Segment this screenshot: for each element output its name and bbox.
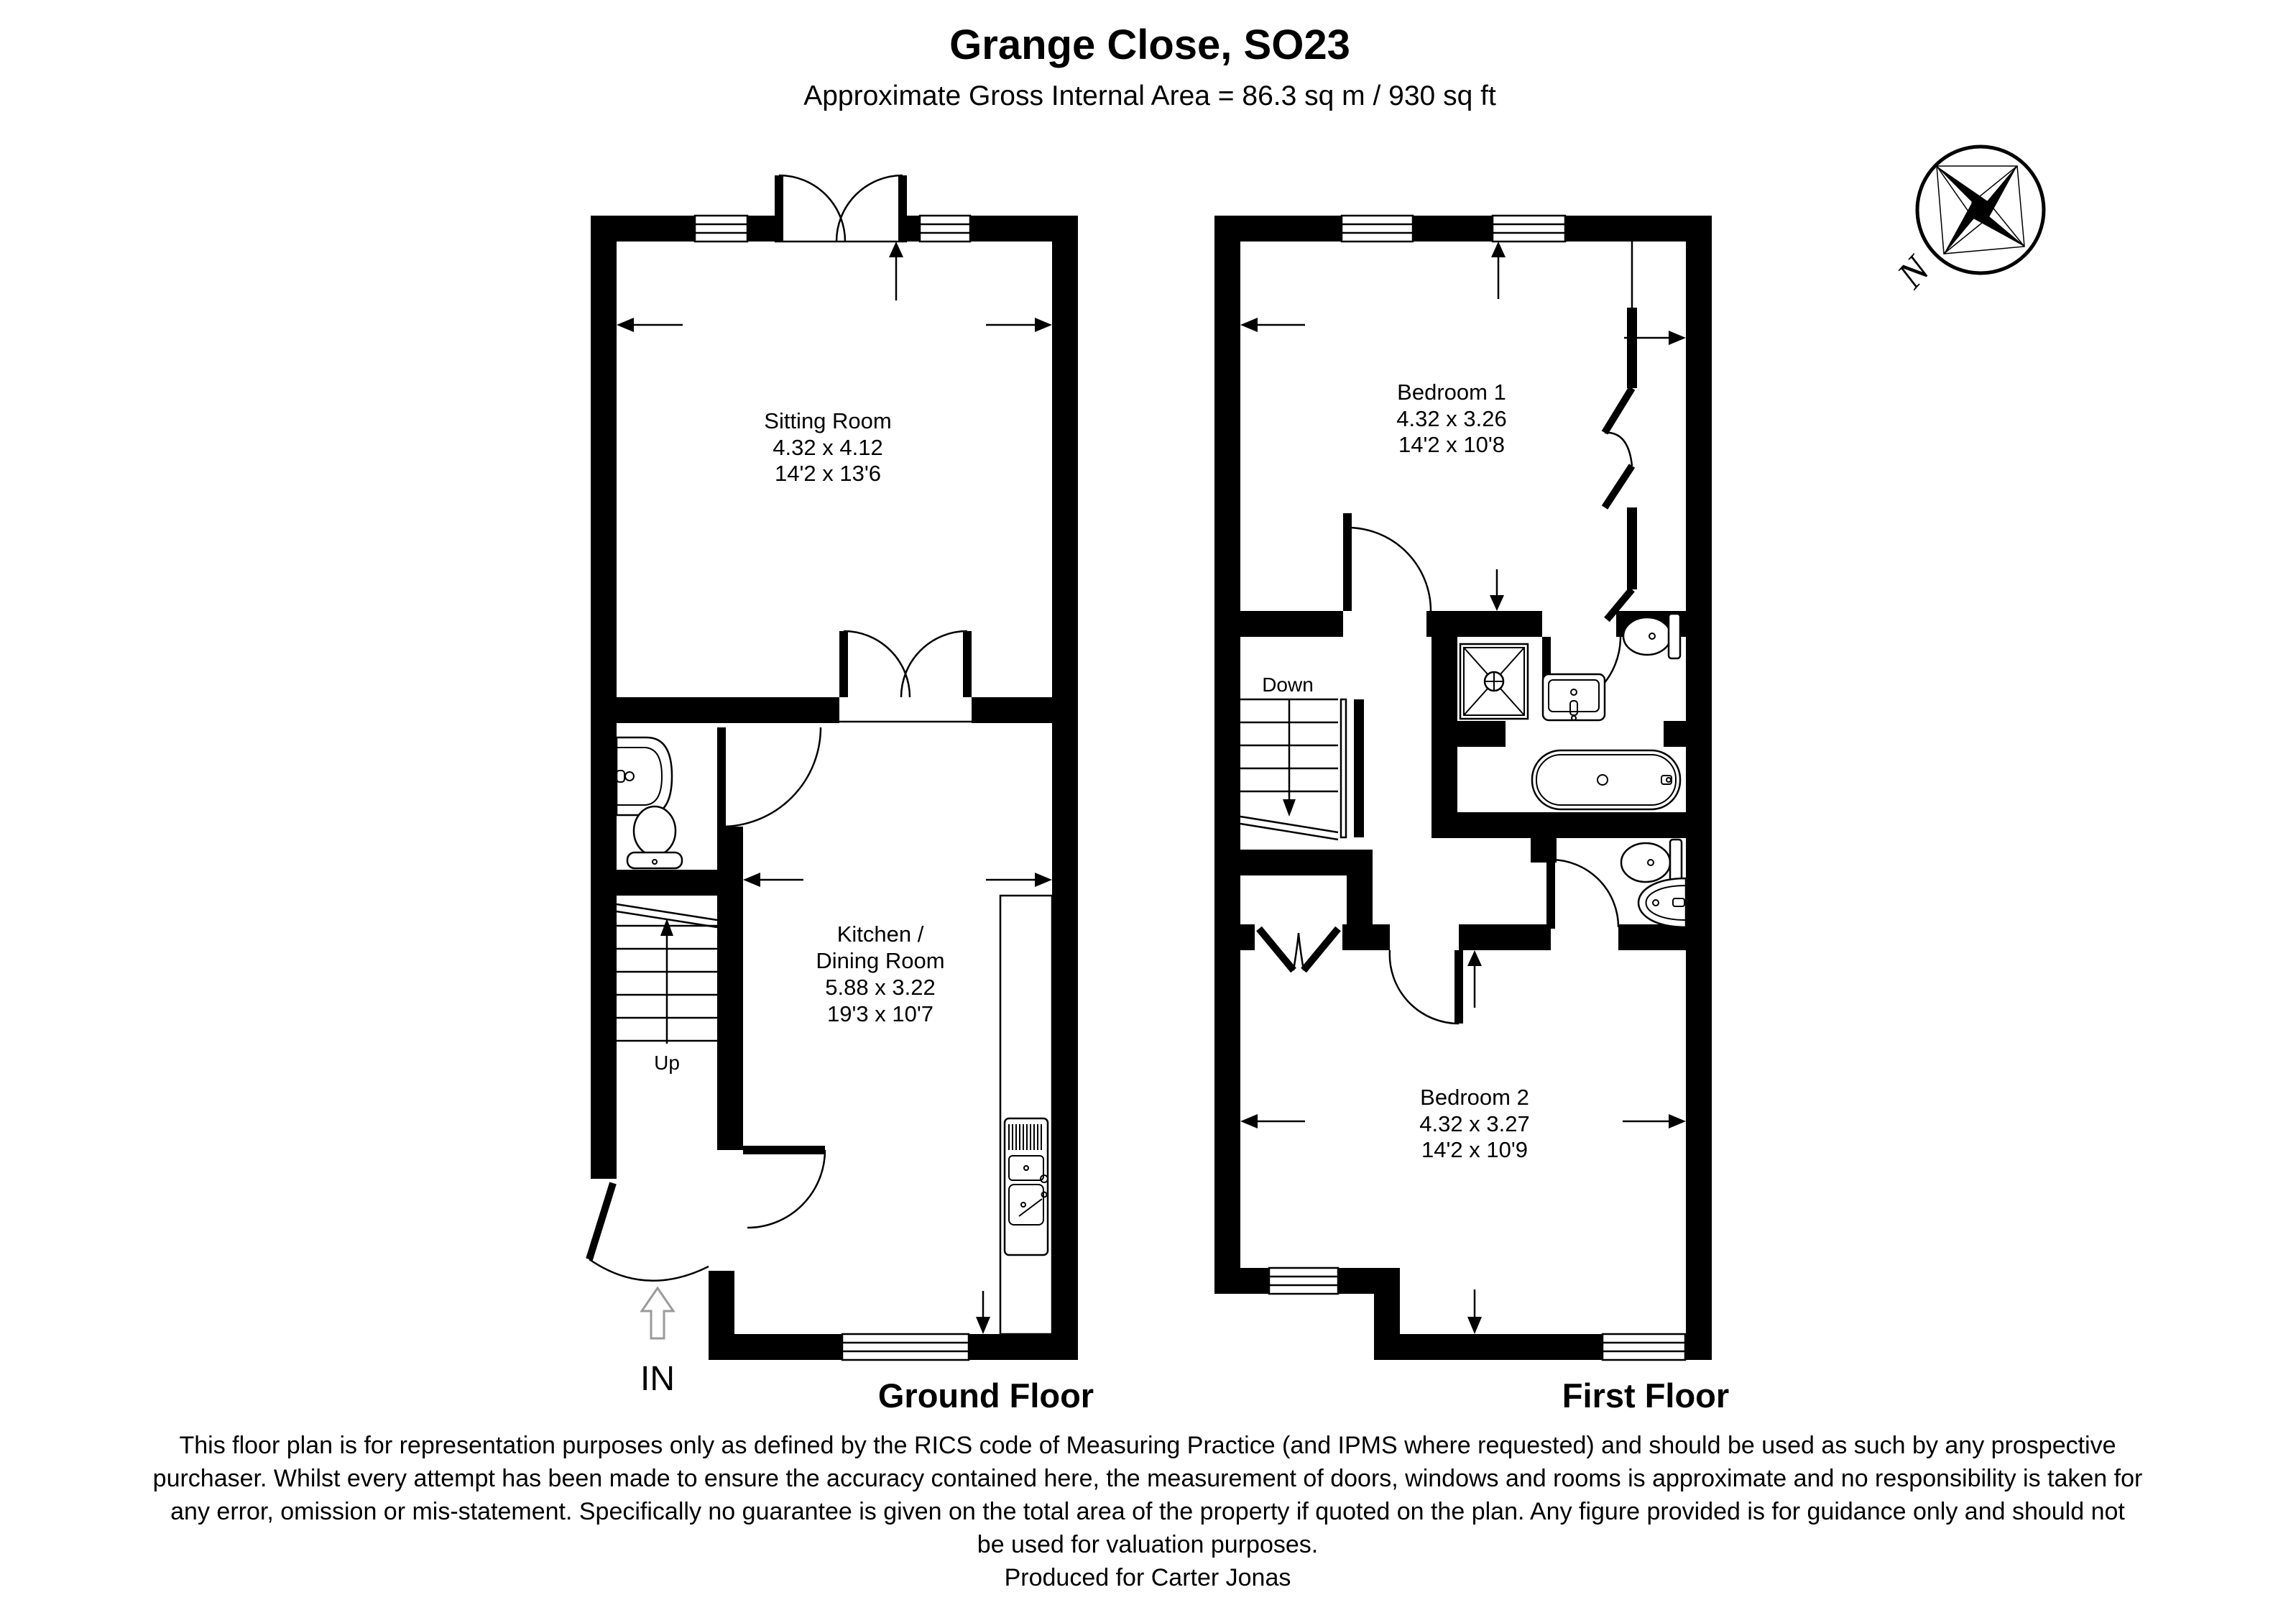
bedroom1-door-arc	[1343, 513, 1431, 611]
ground-floor-label: Ground Floor	[878, 1376, 1094, 1415]
window	[842, 1334, 969, 1360]
header: Grange Close, SO23 Approximate Gross Int…	[803, 22, 1496, 111]
bedroom2-imperial: 14'2 x 10'9	[1421, 1137, 1528, 1162]
sitting-room-metric: 4.32 x 4.12	[773, 435, 882, 460]
window	[920, 216, 970, 242]
wardrobe-bifold-doors	[1605, 242, 1637, 620]
window	[1603, 1334, 1685, 1360]
window	[1493, 216, 1565, 242]
stairs-up: Up	[617, 904, 717, 1074]
disclaimer-credit: Produced for Carter Jonas	[1005, 1564, 1291, 1591]
shower-icon	[1460, 644, 1528, 719]
floor-plan-ground: IN Up	[589, 175, 1094, 1415]
entrance-arrow-icon	[642, 1288, 673, 1338]
kitchen-metric: 5.88 x 3.22	[825, 975, 935, 1000]
entrance-door-arc	[589, 1183, 709, 1281]
page-subtitle: Approximate Gross Internal Area = 86.3 s…	[803, 81, 1496, 111]
kitchen-imperial: 19'3 x 10'7	[827, 1001, 933, 1026]
bedroom2-metric: 4.32 x 3.27	[1419, 1111, 1529, 1136]
kitchen-name-2: Dining Room	[816, 948, 944, 973]
window	[1269, 1268, 1338, 1294]
bedroom1-imperial: 14'2 x 10'8	[1398, 432, 1505, 457]
bedroom2-door-arc	[1390, 950, 1463, 1024]
sitting-room-imperial: 14'2 x 13'6	[775, 461, 881, 486]
sink-icon	[1638, 878, 1686, 927]
wc-door-arc	[717, 727, 821, 827]
page-title: Grange Close, SO23	[949, 22, 1350, 68]
bathroom-door-arc	[1546, 860, 1618, 929]
disclaimer-line: any error, omission or mis-statement. Sp…	[170, 1498, 2125, 1525]
kitchen-counter	[1000, 896, 1052, 1334]
french-door-arc	[775, 175, 907, 242]
sink-icon	[1543, 674, 1605, 720]
entrance-label: IN	[640, 1360, 675, 1398]
compass-rose-icon: N	[1888, 147, 2044, 297]
room-label-bedroom1: Bedroom 1 4.32 x 3.26 14'2 x 10'8	[1396, 380, 1506, 457]
measure-arrow	[617, 242, 1052, 332]
room-label-bedroom2: Bedroom 2 4.32 x 3.27 14'2 x 10'9	[1419, 1085, 1529, 1162]
compass-north-label: N	[1888, 247, 1939, 297]
bathtub-icon	[1532, 750, 1680, 809]
sitting-room-name: Sitting Room	[764, 408, 891, 433]
window	[695, 216, 747, 242]
disclaimer-line: purchaser. Whilst every attempt has been…	[153, 1465, 2143, 1492]
disclaimer-line: This floor plan is for representation pu…	[179, 1432, 2116, 1459]
disclaimer: This floor plan is for representation pu…	[153, 1432, 2143, 1591]
closet-doors	[1259, 929, 1338, 970]
bedroom2-name: Bedroom 2	[1420, 1085, 1529, 1110]
kitchen-sink-icon	[1005, 1118, 1048, 1255]
window	[1342, 216, 1413, 242]
stairs-down: Down	[1240, 673, 1364, 840]
bedroom1-metric: 4.32 x 3.26	[1396, 406, 1506, 431]
stairs-down-label: Down	[1262, 673, 1314, 696]
sink-icon	[617, 737, 672, 815]
floorplan-page: Grange Close, SO23 Approximate Gross Int…	[0, 0, 2296, 1623]
hall-door-arc	[743, 1146, 825, 1228]
first-floor-label: First Floor	[1562, 1376, 1729, 1415]
room-label-kitchen: Kitchen / Dining Room 5.88 x 3.22 19'3 x…	[816, 921, 944, 1026]
stairs-up-label: Up	[654, 1052, 680, 1074]
room-label-sitting: Sitting Room 4.32 x 4.12 14'2 x 13'6	[764, 408, 891, 486]
double-door-arc	[839, 631, 972, 722]
floor-plan-first: Down	[1214, 216, 1729, 1415]
kitchen-name-1: Kitchen /	[837, 921, 924, 947]
bedroom1-name: Bedroom 1	[1397, 380, 1506, 405]
disclaimer-line: be used for valuation purposes.	[977, 1531, 1318, 1558]
